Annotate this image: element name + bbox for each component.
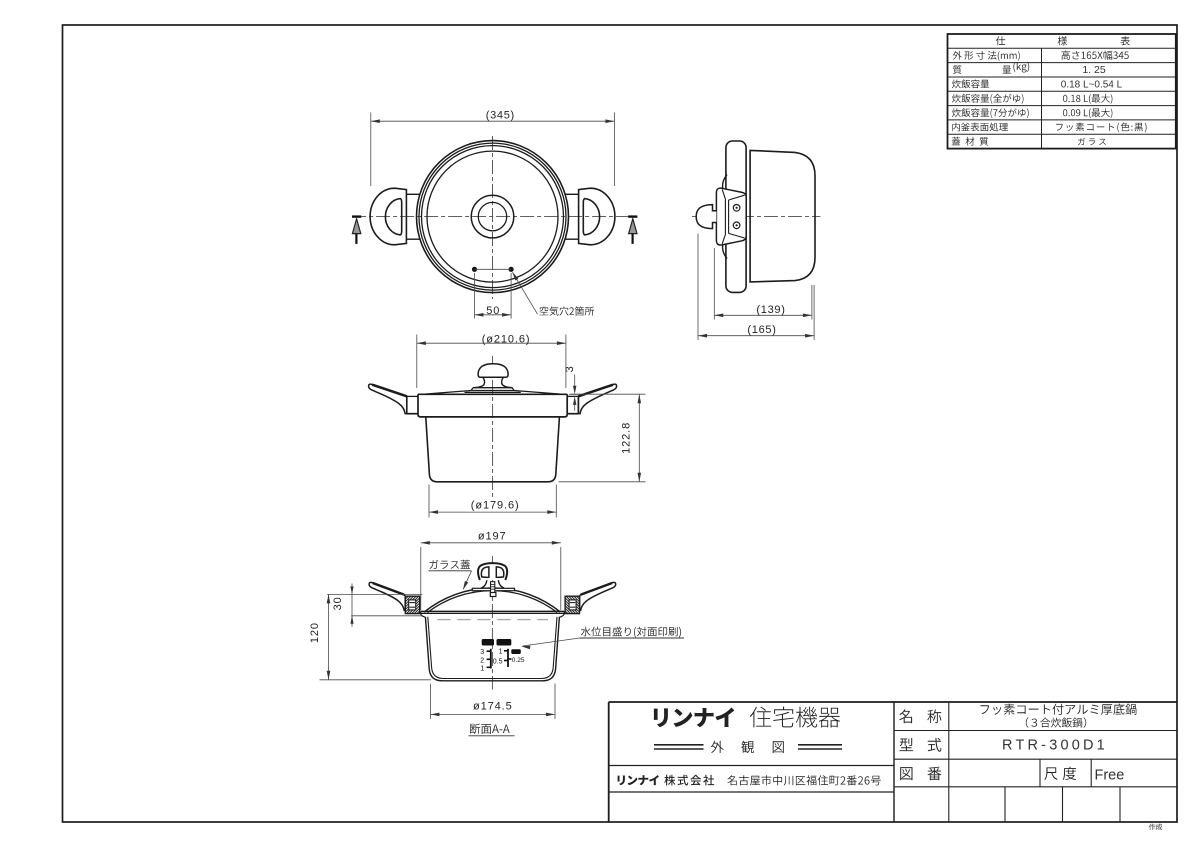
- svg-text:(165): (165): [747, 324, 776, 336]
- svg-text:30: 30: [332, 596, 344, 610]
- svg-text:2: 2: [480, 657, 484, 664]
- svg-text:(ø210.6): (ø210.6): [482, 333, 531, 345]
- svg-text:1. 25: 1. 25: [1082, 64, 1106, 76]
- svg-text:ø197: ø197: [478, 531, 507, 543]
- svg-text:3: 3: [564, 366, 576, 372]
- svg-text:1: 1: [480, 665, 484, 672]
- svg-text:3: 3: [480, 649, 484, 656]
- svg-text:ø174.5: ø174.5: [473, 701, 513, 713]
- svg-text:0.18 L~0.54 L: 0.18 L~0.54 L: [1061, 80, 1123, 91]
- svg-text:(345): (345): [486, 110, 515, 122]
- svg-text:0.25: 0.25: [512, 657, 525, 664]
- svg-text:(139): (139): [756, 304, 785, 316]
- svg-text:122.8: 122.8: [620, 422, 632, 454]
- svg-text:Free: Free: [1095, 767, 1125, 783]
- svg-text:120: 120: [309, 622, 321, 643]
- svg-text:50: 50: [486, 305, 500, 317]
- svg-text:0.5: 0.5: [493, 658, 503, 665]
- svg-text:1: 1: [499, 649, 503, 656]
- svg-text:RTR-300D1: RTR-300D1: [1002, 738, 1108, 754]
- svg-text:(ø179.6): (ø179.6): [471, 500, 520, 512]
